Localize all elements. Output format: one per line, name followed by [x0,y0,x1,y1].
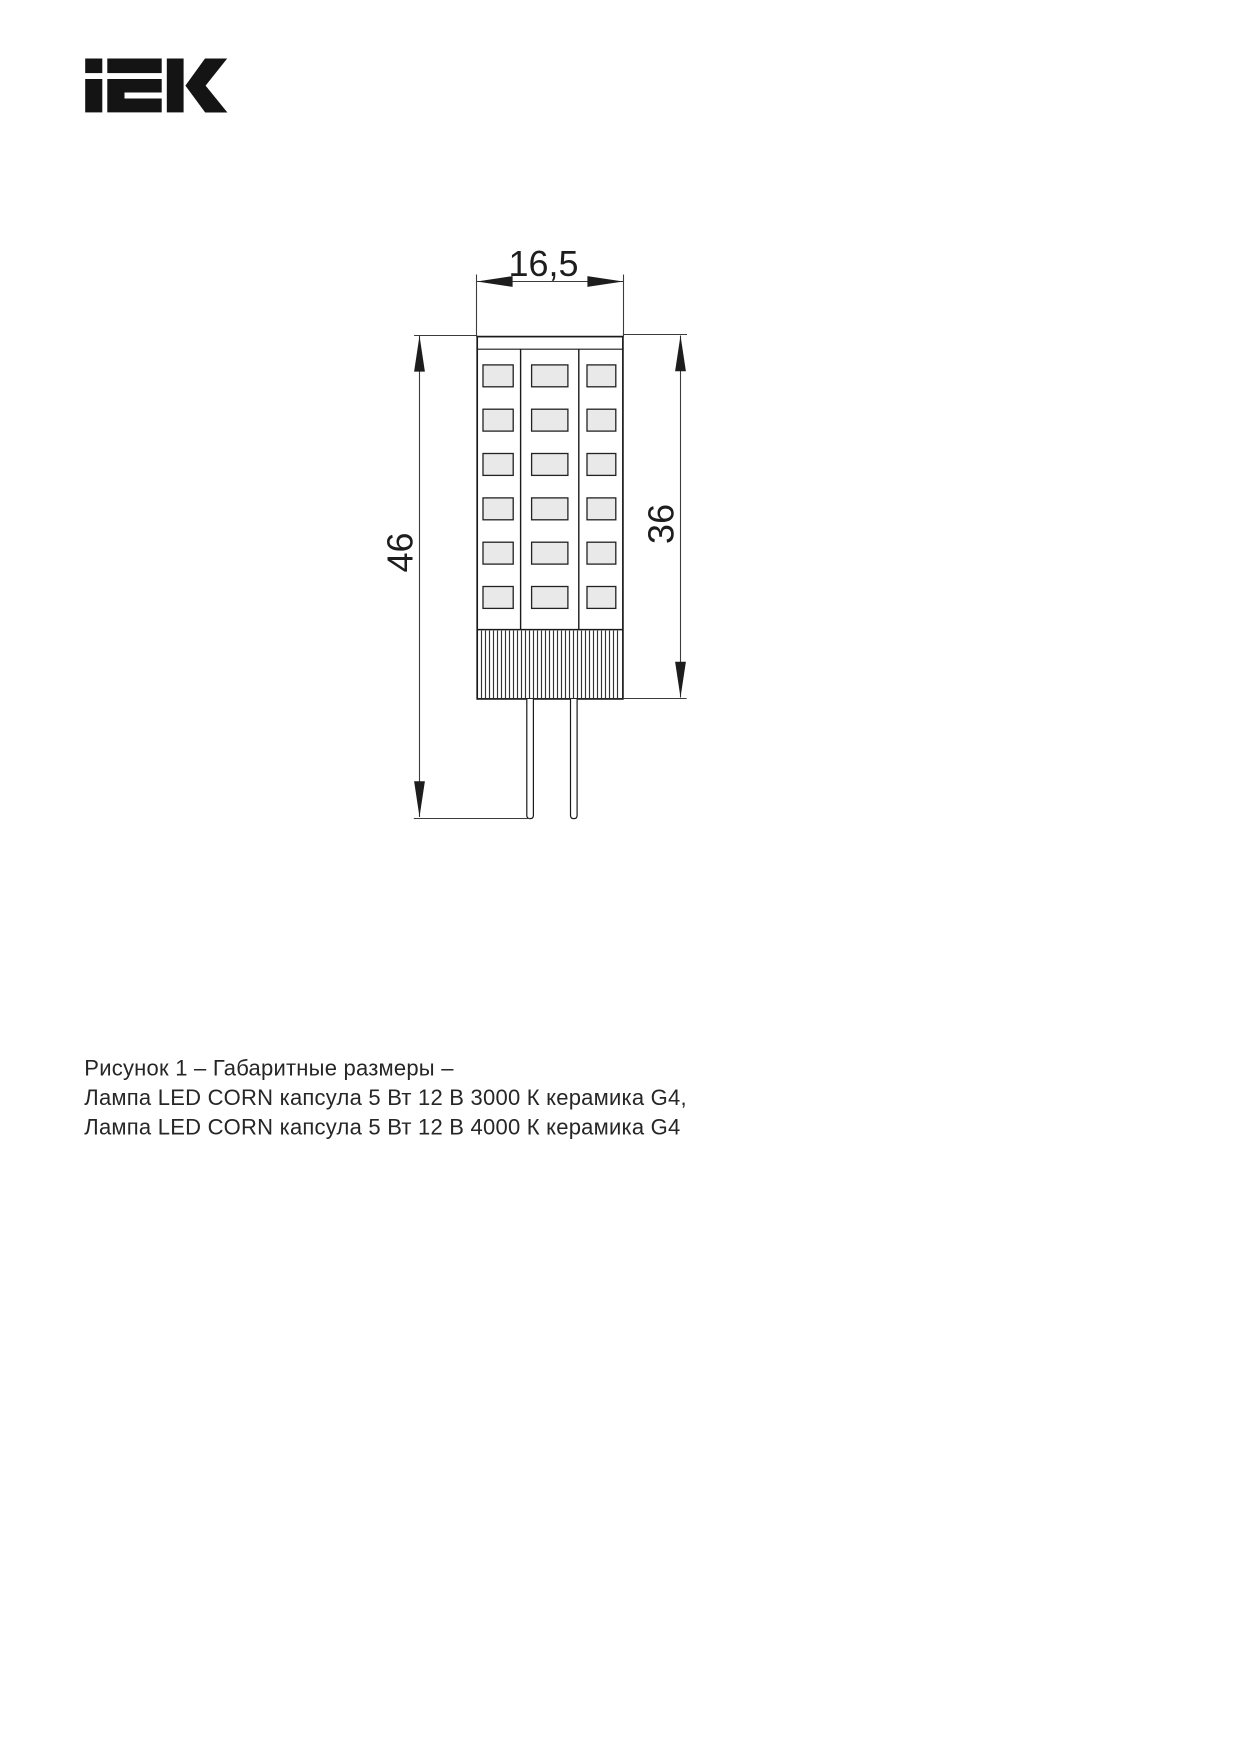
svg-text:36: 36 [641,504,682,544]
svg-text:Рисунок 1 – Габаритные размеры: Рисунок 1 – Габаритные размеры – [84,1055,454,1080]
svg-text:16,5: 16,5 [508,243,578,284]
svg-text:Лампа LED CORN капсула 5 Вт 12: Лампа LED CORN капсула 5 Вт 12 В 4000 К … [84,1115,680,1140]
svg-text:Лампа LED CORN капсула 5 Вт 12: Лампа LED CORN капсула 5 Вт 12 В 3000 К … [84,1085,687,1110]
svg-text:46: 46 [380,532,421,572]
